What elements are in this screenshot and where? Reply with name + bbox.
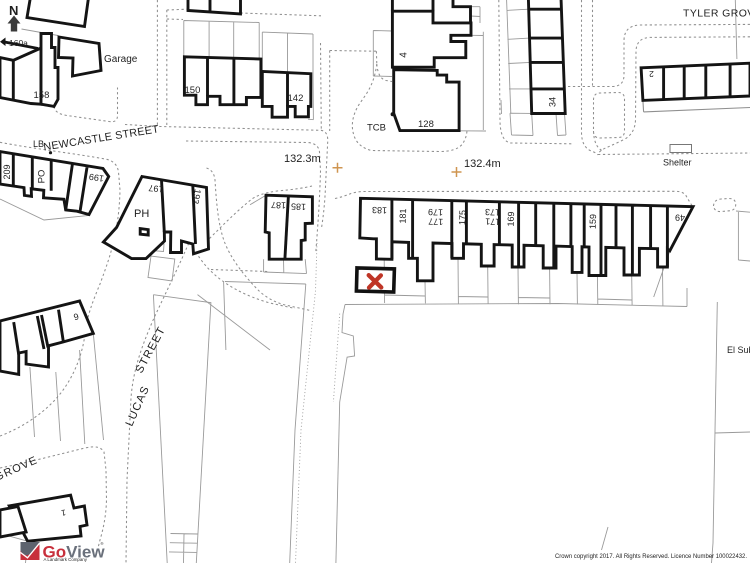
svg-text:179: 179	[428, 207, 443, 217]
svg-text:Garage: Garage	[104, 54, 138, 65]
svg-text:34: 34	[547, 97, 557, 107]
svg-text:49: 49	[675, 212, 685, 222]
svg-text:177: 177	[428, 216, 443, 226]
svg-text:TYLER GROVE: TYLER GROVE	[683, 8, 750, 20]
svg-text:209: 209	[2, 164, 12, 179]
svg-text:160a: 160a	[9, 38, 28, 48]
svg-text:El Sub: El Sub	[727, 345, 750, 355]
svg-text:A Landmark Company: A Landmark Company	[44, 557, 88, 562]
svg-text:173: 173	[485, 207, 500, 217]
svg-text:175: 175	[457, 210, 467, 225]
svg-text:128: 128	[418, 119, 434, 130]
svg-text:LB: LB	[33, 139, 44, 149]
svg-text:2: 2	[649, 69, 654, 79]
svg-text:132.4m: 132.4m	[464, 158, 501, 170]
svg-text:TCB: TCB	[367, 123, 386, 134]
svg-text:Crown copyright 2017. All Righ: Crown copyright 2017. All Rights Reserve…	[555, 553, 747, 560]
svg-text:185: 185	[291, 201, 306, 212]
svg-text:®: ®	[101, 541, 104, 546]
svg-text:150: 150	[185, 85, 201, 96]
svg-text:169: 169	[506, 211, 516, 226]
svg-text:197: 197	[148, 183, 164, 194]
svg-text:187: 187	[271, 200, 286, 211]
svg-text:PO: PO	[37, 170, 48, 184]
svg-text:132.3m: 132.3m	[284, 153, 321, 165]
svg-text:PH: PH	[134, 208, 149, 220]
svg-text:171: 171	[485, 216, 500, 226]
svg-text:142: 142	[288, 93, 304, 104]
svg-text:4: 4	[399, 52, 410, 58]
svg-text:181: 181	[398, 208, 408, 223]
svg-text:158: 158	[34, 90, 50, 101]
svg-text:199: 199	[88, 172, 104, 184]
svg-text:Shelter: Shelter	[663, 158, 692, 168]
svg-text:N: N	[9, 3, 18, 18]
svg-text:183: 183	[372, 205, 387, 215]
svg-text:159: 159	[588, 214, 598, 229]
